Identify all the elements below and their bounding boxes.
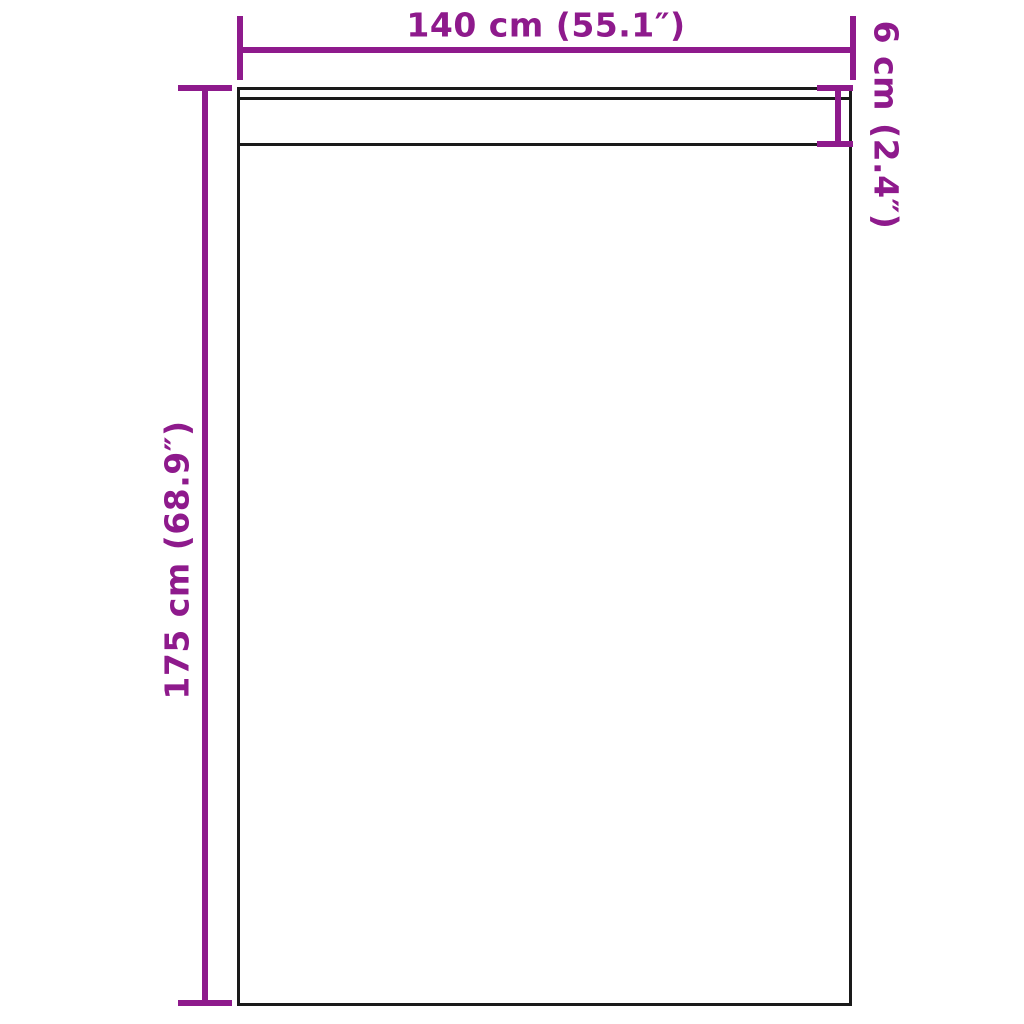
header-dimension-line xyxy=(835,86,841,147)
dimension-diagram: 140 cm (55.1″) 175 cm (68.9″) 6 cm (2.4″… xyxy=(0,0,1024,1024)
width-dimension-line xyxy=(240,47,853,53)
rod-pocket-bottom-seam-line xyxy=(237,143,852,146)
height-dimension-line xyxy=(202,86,208,1006)
height-dimension-tick-bottom xyxy=(178,1000,232,1006)
height-dimension-tick-top xyxy=(178,85,232,91)
width-dimension-tick-left xyxy=(237,16,243,80)
header-dimension-tick-bottom xyxy=(817,141,853,147)
width-dimension-tick-right xyxy=(850,16,856,80)
width-dimension-label: 140 cm (55.1″) xyxy=(406,6,685,45)
height-dimension-label: 175 cm (68.9″) xyxy=(158,420,197,699)
rod-pocket-top-seam-line xyxy=(237,97,852,100)
header-dimension-label: 6 cm (2.4″) xyxy=(867,21,906,230)
header-dimension-tick-top xyxy=(817,85,853,91)
curtain-panel-outline xyxy=(237,87,852,1006)
